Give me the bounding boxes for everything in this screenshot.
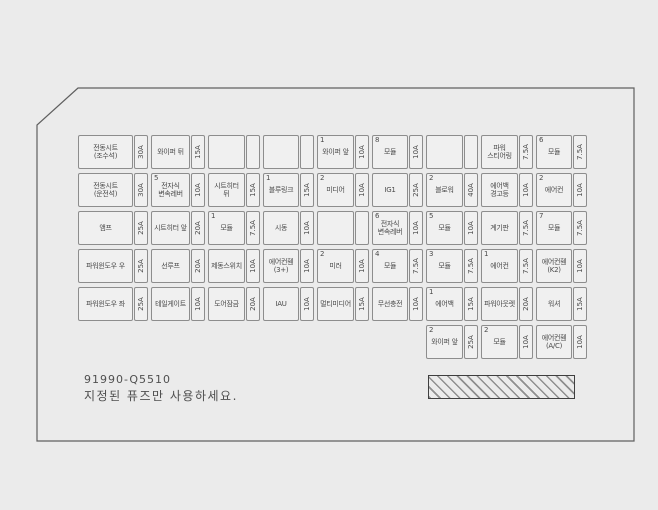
fuse-label: 도어잠금	[214, 300, 239, 308]
fuse-pair: 테일게이트10A	[151, 287, 205, 321]
fuse-amp-rating: 10A	[194, 183, 202, 197]
fuse-amp-cell: 25A	[409, 173, 423, 207]
fuse-pair: 제동스위치10A	[208, 249, 260, 283]
fuse-row: 2와이퍼 앞25A2모듈10A에어컨휀 (A/C)10A	[426, 325, 587, 359]
fuse-amp-cell: 15A	[355, 287, 369, 321]
fuse-label: 모듈	[438, 224, 450, 232]
fuse-number: 2	[429, 174, 433, 182]
fuse-amp-rating: 10A	[303, 259, 311, 273]
fuse-label-cell: 2에어컨	[536, 173, 572, 207]
fuse-amp-rating: 25A	[137, 221, 145, 235]
fuse-pair: 도어잠금20A	[208, 287, 260, 321]
fuse-label-cell: 4모듈	[372, 249, 408, 283]
fuse-number: 5	[154, 174, 158, 182]
fuse-label-cell: 파워윈도우 좌	[78, 287, 133, 321]
fuse-pair	[263, 135, 314, 169]
fuse-label: 에어컨	[545, 186, 563, 194]
fuse-amp-cell: 7.5A	[573, 135, 587, 169]
fuse-amp-rating: 25A	[137, 297, 145, 311]
fuse-amp-cell: 7.5A	[519, 211, 533, 245]
fuse-label: 모듈	[384, 148, 396, 156]
fuse-amp-rating: 10A	[576, 335, 584, 349]
fuse-label-cell	[426, 135, 463, 169]
fuse-row: 파워윈도우 우25A선루프20A제동스위치10A에어컨휀 (3+)10A2미러1…	[78, 249, 587, 283]
fuse-label: 시트히터 앞	[154, 224, 187, 232]
fuse-label-cell: 전동시트 (조수석)	[78, 135, 133, 169]
fuse-pair: IG125A	[372, 173, 423, 207]
fuse-pair: 2미러10A	[317, 249, 369, 283]
fuse-pair: 2에어컨10A	[536, 173, 587, 207]
fuse-label: 멀티미디어	[320, 300, 351, 308]
fuse-label-cell: IAU	[263, 287, 299, 321]
fuse-number: 7	[539, 212, 543, 220]
fuse-label: 파워윈도우 우	[86, 262, 125, 270]
fuse-pair: 전동시트 (조수석)30A	[78, 135, 148, 169]
fuse-amp-cell: 20A	[191, 211, 205, 245]
fuse-label-cell: 6전자식 변속레버	[372, 211, 408, 245]
fuse-amp-cell: 10A	[409, 135, 423, 169]
fuse-amp-cell: 25A	[464, 325, 478, 359]
fuse-amp-cell: 25A	[134, 211, 148, 245]
fuse-label: 테일게이트	[155, 300, 186, 308]
fuse-pair: 6모듈7.5A	[536, 135, 587, 169]
fuse-amp-rating: 7.5A	[467, 258, 475, 274]
fuse-label: 블로워	[435, 186, 453, 194]
fuse-amp-cell: 7.5A	[409, 249, 423, 283]
fuse-amp-rating: 7.5A	[522, 220, 530, 236]
fuse-label-cell: 1모듈	[208, 211, 245, 245]
fuse-label-cell: 에어백 경고등	[481, 173, 518, 207]
fuse-amp-cell: 10A	[409, 287, 423, 321]
fuse-label: IAU	[275, 300, 286, 308]
fuse-amp-cell: 10A	[573, 173, 587, 207]
fuse-label: 모듈	[438, 262, 450, 270]
fuse-pair: 워셔15A	[536, 287, 587, 321]
fuse-label: 계기판	[490, 224, 508, 232]
fuse-label: 모듈	[384, 262, 396, 270]
fuse-label-cell: 파워아웃렛	[481, 287, 518, 321]
fuse-pair: IAU10A	[263, 287, 314, 321]
fuse-amp-cell	[464, 135, 478, 169]
fuse-label-cell: 무선충전	[372, 287, 408, 321]
fuse-label-cell: 도어잠금	[208, 287, 245, 321]
fuse-label: 미러	[329, 262, 341, 270]
fuse-label: 시트히터 뒤	[211, 182, 242, 199]
fuse-label: 제동스위치	[211, 262, 242, 270]
fuse-pair: 에어컨휀 (A/C)10A	[536, 325, 587, 359]
fuse-amp-rating: 15A	[358, 297, 366, 311]
fuse-amp-cell: 25A	[134, 249, 148, 283]
caution-text: 지정된 퓨즈만 사용하세요.	[84, 387, 238, 404]
fuse-label: 워셔	[548, 300, 560, 308]
fuse-number: 2	[320, 174, 324, 182]
fuse-label-cell: 파워 스티어링	[481, 135, 518, 169]
fuse-label: 와이퍼 앞	[322, 148, 349, 156]
fuse-label: IG1	[384, 186, 395, 194]
fuse-number: 4	[375, 250, 379, 258]
fuse-pair: 멀티미디어15A	[317, 287, 369, 321]
fuse-amp-rating: 20A	[249, 297, 257, 311]
fuse-amp-rating: 15A	[576, 297, 584, 311]
fuse-label: 모듈	[220, 224, 232, 232]
fuse-label-cell: 2미디어	[317, 173, 354, 207]
fuse-amp-cell: 15A	[246, 173, 260, 207]
fuse-amp-rating: 10A	[194, 297, 202, 311]
fuse-number: 6	[375, 212, 379, 220]
fuse-label: 미디어	[326, 186, 344, 194]
fuse-label-cell	[208, 135, 245, 169]
fuse-label: 와이퍼 앞	[431, 338, 458, 346]
fuse-label-cell: 전동시트 (운전석)	[78, 173, 133, 207]
fuse-amp-cell: 15A	[191, 135, 205, 169]
fuse-label-cell: 2미러	[317, 249, 354, 283]
fuse-amp-rating: 30A	[137, 183, 145, 197]
fuse-pair: 에어백 경고등10A	[481, 173, 533, 207]
fuse-pair: 계기판7.5A	[481, 211, 533, 245]
fuse-amp-cell: 20A	[191, 249, 205, 283]
fuse-pair: 파워아웃렛20A	[481, 287, 533, 321]
fuse-pair: 시동10A	[263, 211, 314, 245]
fuse-pair: 3모듈7.5A	[426, 249, 478, 283]
fuse-amp-cell: 10A	[191, 287, 205, 321]
fuse-pair: 2와이퍼 앞25A	[426, 325, 478, 359]
fuse-amp-rating: 10A	[522, 335, 530, 349]
fuse-amp-cell: 7.5A	[519, 135, 533, 169]
fuse-amp-rating: 10A	[412, 221, 420, 235]
fuse-amp-rating: 7.5A	[522, 144, 530, 160]
fuse-pair	[208, 135, 260, 169]
fuse-label: 에어컨휀 (A/C)	[539, 334, 569, 351]
fuse-amp-cell: 10A	[409, 211, 423, 245]
fuse-amp-rating: 7.5A	[576, 220, 584, 236]
fuse-amp-cell	[246, 135, 260, 169]
fuse-pair: 1모듈7.5A	[208, 211, 260, 245]
fuse-amp-cell: 7.5A	[573, 211, 587, 245]
fuse-amp-cell: 10A	[519, 325, 533, 359]
fuse-pair	[317, 211, 369, 245]
fuse-amp-rating: 10A	[576, 183, 584, 197]
fuse-row: 전동시트 (조수석)30A와이퍼 뒤15A1와이퍼 앞10A8모듈10A파워 스…	[78, 135, 587, 169]
fuse-pair: 5모듈10A	[426, 211, 478, 245]
fuse-number: 2	[320, 250, 324, 258]
fuse-label: 에어컨휀 (3+)	[266, 258, 296, 275]
fuse-amp-cell: 10A	[464, 211, 478, 245]
fuse-label-cell: 5모듈	[426, 211, 463, 245]
fuse-pair: 에어컨휀 (K2)10A	[536, 249, 587, 283]
hatched-connector-block	[428, 375, 575, 399]
fuse-pair: 4모듈7.5A	[372, 249, 423, 283]
fuse-number: 2	[484, 326, 488, 334]
fuse-label-cell: 에어컨휀 (A/C)	[536, 325, 572, 359]
fuse-amp-rating: 10A	[522, 183, 530, 197]
fuse-number: 2	[539, 174, 543, 182]
fuse-amp-cell: 10A	[573, 325, 587, 359]
fuse-amp-rating: 30A	[137, 145, 145, 159]
fuse-label-cell: 1와이퍼 앞	[317, 135, 354, 169]
fuse-number: 6	[539, 136, 543, 144]
fuse-label-cell: 5전자식 변속레버	[151, 173, 190, 207]
fuse-amp-cell: 10A	[573, 249, 587, 283]
fuse-pair: 6전자식 변속레버10A	[372, 211, 423, 245]
fuse-row: 앰프25A시트히터 앞20A1모듈7.5A시동10A6전자식 변속레버10A5모…	[78, 211, 587, 245]
fuse-number: 1	[484, 250, 488, 258]
fuse-amp-cell: 30A	[134, 173, 148, 207]
fuse-pair: 파워윈도우 우25A	[78, 249, 148, 283]
fuse-pair: 와이퍼 뒤15A	[151, 135, 205, 169]
fuse-label-cell	[317, 211, 354, 245]
fuse-label: 파워윈도우 좌	[86, 300, 125, 308]
fuse-label-cell: 1블루링크	[263, 173, 299, 207]
fuse-amp-rating: 10A	[358, 259, 366, 273]
fuse-amp-rating: 15A	[303, 183, 311, 197]
fuse-label-cell: 선루프	[151, 249, 190, 283]
fuse-label: 전동시트 (운전석)	[81, 182, 130, 199]
fuse-number: 8	[375, 136, 379, 144]
fuse-label: 파워아웃렛	[484, 300, 515, 308]
fuse-pair: 파워 스티어링7.5A	[481, 135, 533, 169]
fuse-amp-cell: 15A	[300, 173, 314, 207]
fuse-amp-cell: 20A	[246, 287, 260, 321]
fuse-label: 전동시트 (조수석)	[81, 144, 130, 161]
fuse-pair: 선루프20A	[151, 249, 205, 283]
fuse-amp-rating: 40A	[467, 183, 475, 197]
fuse-number: 1	[266, 174, 270, 182]
fuse-amp-cell: 10A	[300, 249, 314, 283]
fuse-label-cell: 3모듈	[426, 249, 463, 283]
fuse-pair: 2블로워40A	[426, 173, 478, 207]
fuse-pair: 전동시트 (운전석)30A	[78, 173, 148, 207]
fuse-number: 1	[211, 212, 215, 220]
fuse-pair: 7모듈7.5A	[536, 211, 587, 245]
fuse-label-cell	[263, 135, 299, 169]
fuse-amp-cell: 20A	[519, 287, 533, 321]
fuse-amp-rating: 7.5A	[249, 220, 257, 236]
fuse-label-cell: IG1	[372, 173, 408, 207]
fuse-pair	[426, 135, 478, 169]
fuse-amp-cell: 10A	[519, 173, 533, 207]
fuse-label-cell: 8모듈	[372, 135, 408, 169]
fuse-pair: 2미디어10A	[317, 173, 369, 207]
fuse-label-cell: 테일게이트	[151, 287, 190, 321]
fuse-label-cell: 파워윈도우 우	[78, 249, 133, 283]
fuse-number: 2	[429, 326, 433, 334]
fuse-pair: 2모듈10A	[481, 325, 533, 359]
fuse-amp-rating: 15A	[249, 183, 257, 197]
fuse-amp-cell: 10A	[355, 173, 369, 207]
fuse-label: 모듈	[493, 338, 505, 346]
fuse-amp-cell: 10A	[355, 249, 369, 283]
fuse-amp-cell: 10A	[191, 173, 205, 207]
fuse-amp-cell: 10A	[300, 211, 314, 245]
fuse-label-cell: 앰프	[78, 211, 133, 245]
fuse-label-cell: 멀티미디어	[317, 287, 354, 321]
fuse-amp-cell: 10A	[246, 249, 260, 283]
fuse-amp-cell: 30A	[134, 135, 148, 169]
fuse-label-cell: 제동스위치	[208, 249, 245, 283]
fuse-amp-cell: 10A	[355, 135, 369, 169]
fuse-label: 에어컨휀 (K2)	[539, 258, 569, 275]
fuse-diagram-page: 전동시트 (조수석)30A와이퍼 뒤15A1와이퍼 앞10A8모듈10A파워 스…	[0, 0, 658, 510]
part-number: 91990-Q5510	[84, 373, 171, 386]
fuse-number: 1	[320, 136, 324, 144]
fuse-label: 와이퍼 뒤	[157, 148, 184, 156]
fuse-label: 무선충전	[378, 300, 403, 308]
fuse-pair: 1에어컨7.5A	[481, 249, 533, 283]
fuse-amp-rating: 20A	[522, 297, 530, 311]
fuse-amp-cell: 40A	[464, 173, 478, 207]
fuse-pair: 파워윈도우 좌25A	[78, 287, 148, 321]
fuse-amp-rating: 10A	[358, 145, 366, 159]
fuse-number: 1	[429, 288, 433, 296]
fuse-pair: 8모듈10A	[372, 135, 423, 169]
fuse-row: 전동시트 (운전석)30A5전자식 변속레버10A시트히터 뒤15A1블루링크1…	[78, 173, 587, 207]
fuse-label-cell: 2블로워	[426, 173, 463, 207]
fuse-amp-rating: 10A	[412, 145, 420, 159]
fuse-label: 블루링크	[269, 186, 294, 194]
fuse-amp-cell: 15A	[464, 287, 478, 321]
fuse-label: 전자식 변속레버	[154, 182, 187, 199]
fuse-amp-rating: 7.5A	[412, 258, 420, 274]
fuse-pair: 에어컨휀 (3+)10A	[263, 249, 314, 283]
fuse-pair: 5전자식 변속레버10A	[151, 173, 205, 207]
fuse-amp-cell	[355, 211, 369, 245]
fuse-pair: 무선충전10A	[372, 287, 423, 321]
fuse-label-cell: 에어컨휀 (K2)	[536, 249, 572, 283]
fuse-amp-rating: 7.5A	[576, 144, 584, 160]
fuse-label-cell: 와이퍼 뒤	[151, 135, 190, 169]
fuse-amp-rating: 10A	[358, 183, 366, 197]
fuse-amp-rating: 15A	[194, 145, 202, 159]
fuse-amp-rating: 10A	[249, 259, 257, 273]
fuse-label: 파워 스티어링	[484, 144, 515, 161]
fuse-pair: 시트히터 뒤15A	[208, 173, 260, 207]
fuse-label: 시동	[275, 224, 287, 232]
fuse-amp-rating: 10A	[303, 297, 311, 311]
fuse-label-cell: 2모듈	[481, 325, 518, 359]
fuse-pair: 앰프25A	[78, 211, 148, 245]
fuse-grid: 전동시트 (조수석)30A와이퍼 뒤15A1와이퍼 앞10A8모듈10A파워 스…	[78, 135, 587, 363]
fuse-amp-rating: 15A	[467, 297, 475, 311]
fuse-label-cell: 계기판	[481, 211, 518, 245]
fuse-label-cell: 시트히터 앞	[151, 211, 190, 245]
fuse-label: 모듈	[548, 148, 560, 156]
fuse-amp-cell: 15A	[573, 287, 587, 321]
fuse-label: 에어백	[435, 300, 453, 308]
fuse-label: 선루프	[161, 262, 179, 270]
fuse-amp-cell: 7.5A	[246, 211, 260, 245]
fuse-amp-rating: 25A	[137, 259, 145, 273]
fuse-amp-rating: 20A	[194, 259, 202, 273]
fuse-label: 모듈	[548, 224, 560, 232]
fuse-amp-rating: 10A	[576, 259, 584, 273]
fuse-label-cell: 에어컨휀 (3+)	[263, 249, 299, 283]
fuse-label: 앰프	[99, 224, 111, 232]
fuse-label-cell: 1에어컨	[481, 249, 518, 283]
fuse-amp-cell: 7.5A	[519, 249, 533, 283]
fuse-amp-cell: 7.5A	[464, 249, 478, 283]
fuse-pair: 1와이퍼 앞10A	[317, 135, 369, 169]
fuse-amp-rating: 10A	[303, 221, 311, 235]
fuse-number: 5	[429, 212, 433, 220]
fuse-amp-rating: 25A	[412, 183, 420, 197]
fuse-amp-cell: 10A	[300, 287, 314, 321]
fuse-label: 전자식 변속레버	[375, 220, 405, 237]
fuse-amp-rating: 20A	[194, 221, 202, 235]
fuse-amp-rating: 7.5A	[522, 258, 530, 274]
fuse-amp-rating: 10A	[467, 221, 475, 235]
fuse-label-cell: 7모듈	[536, 211, 572, 245]
fuse-label-cell: 워셔	[536, 287, 572, 321]
fuse-label-cell: 시동	[263, 211, 299, 245]
fuse-amp-rating: 25A	[467, 335, 475, 349]
fuse-number: 3	[429, 250, 433, 258]
fuse-label: 에어컨	[490, 262, 508, 270]
fuse-pair: 1에어백15A	[426, 287, 478, 321]
fuse-label: 에어백 경고등	[484, 182, 515, 199]
fuse-label-cell: 1에어백	[426, 287, 463, 321]
fuse-amp-rating: 10A	[412, 297, 420, 311]
fuse-amp-cell	[300, 135, 314, 169]
fuse-label-cell: 2와이퍼 앞	[426, 325, 463, 359]
fuse-amp-cell: 25A	[134, 287, 148, 321]
fuse-label-cell: 시트히터 뒤	[208, 173, 245, 207]
fuse-pair: 1블루링크15A	[263, 173, 314, 207]
fuse-pair: 시트히터 앞20A	[151, 211, 205, 245]
fuse-row: 파워윈도우 좌25A테일게이트10A도어잠금20AIAU10A멀티미디어15A무…	[78, 287, 587, 321]
fuse-label-cell: 6모듈	[536, 135, 572, 169]
